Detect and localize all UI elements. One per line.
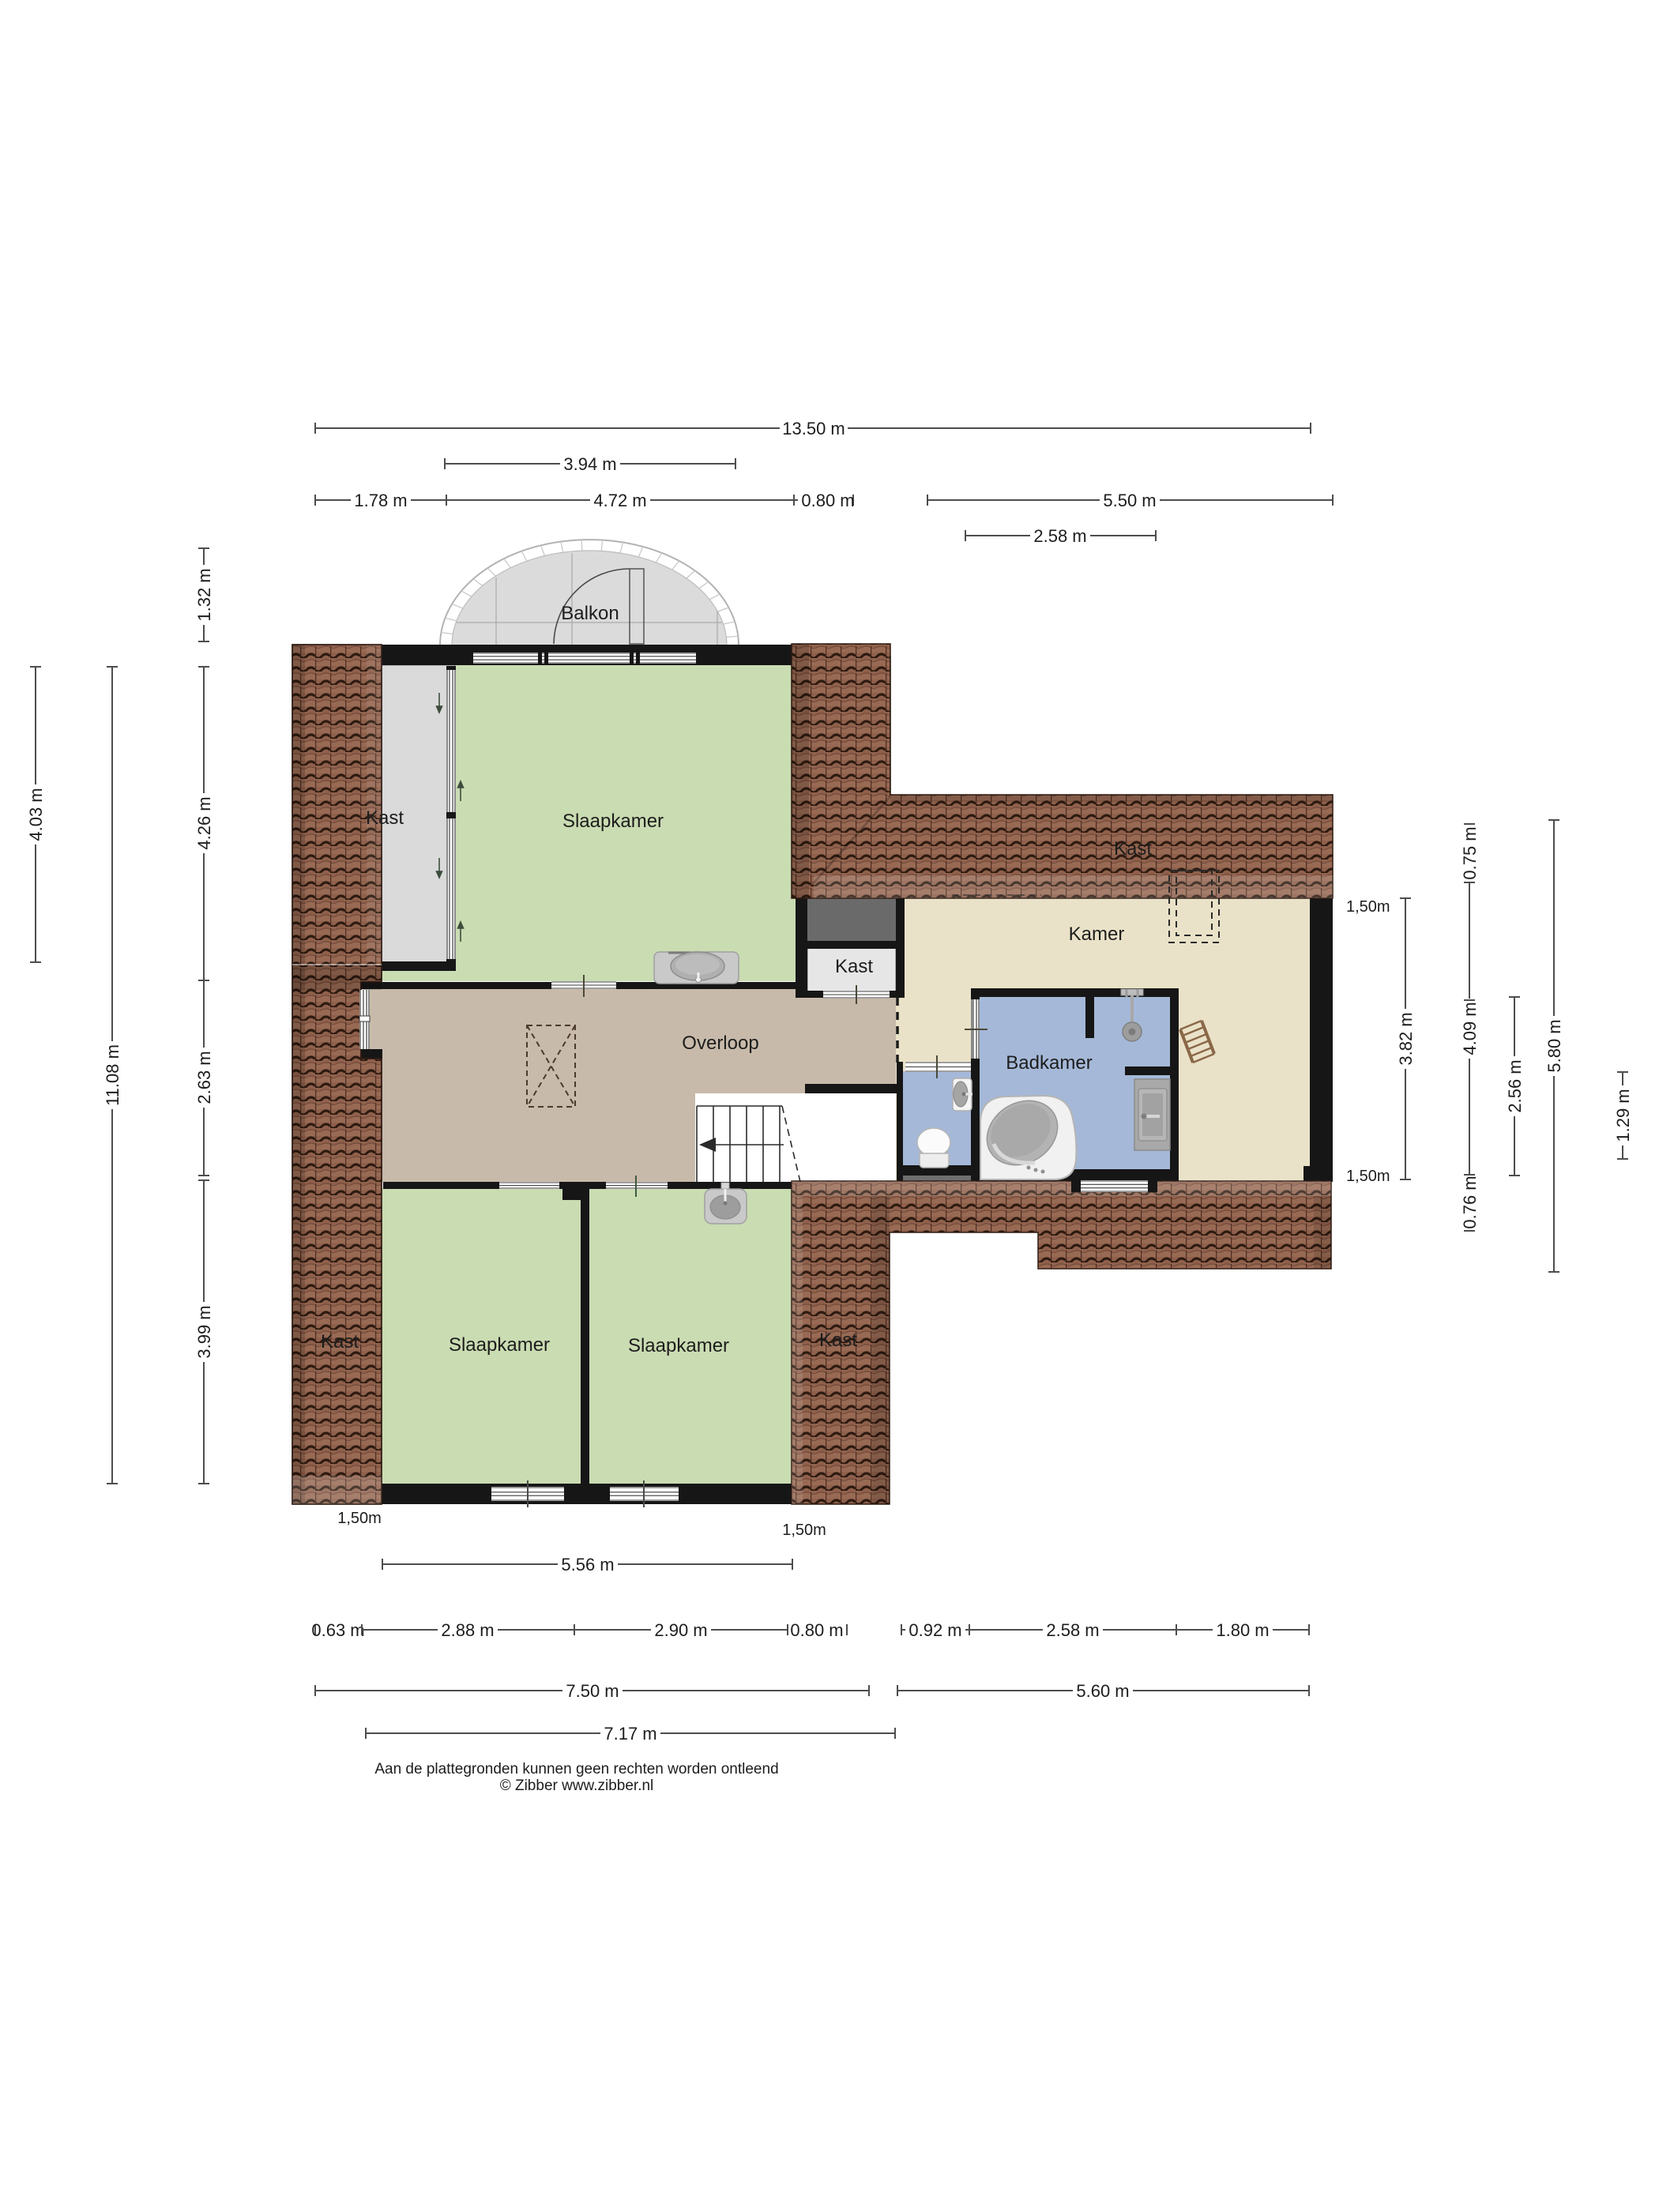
svg-text:11.08 m: 11.08 m bbox=[103, 1044, 122, 1106]
svg-text:1.80 m: 1.80 m bbox=[1216, 1620, 1269, 1640]
svg-text:1.78 m: 1.78 m bbox=[354, 491, 407, 510]
svg-text:0.75 m: 0.75 m bbox=[1460, 826, 1480, 879]
svg-text:Slaapkamer: Slaapkamer bbox=[628, 1335, 729, 1356]
svg-text:3.99 m: 3.99 m bbox=[194, 1305, 214, 1358]
svg-text:Aan de plattegronden kunnen ge: Aan de plattegronden kunnen geen rechten… bbox=[374, 1761, 778, 1777]
svg-text:5.50 m: 5.50 m bbox=[1103, 491, 1156, 510]
svg-text:0.80 m: 0.80 m bbox=[801, 491, 854, 510]
svg-text:5.60 m: 5.60 m bbox=[1076, 1681, 1129, 1701]
svg-text:2.90 m: 2.90 m bbox=[654, 1620, 707, 1640]
svg-text:0.76 m: 0.76 m bbox=[1460, 1176, 1480, 1228]
svg-text:5.80 m: 5.80 m bbox=[1544, 1019, 1564, 1072]
svg-text:Slaapkamer: Slaapkamer bbox=[562, 811, 664, 832]
svg-text:Kast: Kast bbox=[366, 807, 404, 829]
svg-text:1,50m: 1,50m bbox=[1346, 1168, 1390, 1185]
svg-text:4.09 m: 4.09 m bbox=[1460, 1002, 1480, 1055]
svg-text:Slaapkamer: Slaapkamer bbox=[449, 1334, 550, 1356]
svg-text:7.17 m: 7.17 m bbox=[604, 1724, 656, 1744]
svg-text:2.63 m: 2.63 m bbox=[194, 1051, 214, 1104]
svg-text:1.32 m: 1.32 m bbox=[194, 568, 214, 621]
svg-text:7.50 m: 7.50 m bbox=[566, 1681, 619, 1701]
svg-text:1.29 m: 1.29 m bbox=[1613, 1089, 1633, 1142]
svg-text:13.50 m: 13.50 m bbox=[782, 419, 845, 438]
svg-text:2.58 m: 2.58 m bbox=[1033, 526, 1086, 546]
svg-text:Overloop: Overloop bbox=[682, 1033, 758, 1054]
svg-text:3.82 m: 3.82 m bbox=[1396, 1012, 1416, 1065]
svg-text:Badkamer: Badkamer bbox=[1006, 1052, 1092, 1074]
svg-text:5.56 m: 5.56 m bbox=[561, 1555, 614, 1574]
svg-text:Kast: Kast bbox=[819, 1330, 857, 1351]
svg-text:Kast: Kast bbox=[835, 956, 873, 977]
svg-text:2.88 m: 2.88 m bbox=[441, 1620, 494, 1640]
svg-text:1,50m: 1,50m bbox=[782, 1522, 826, 1539]
svg-text:© Zibber www.zibber.nl: © Zibber www.zibber.nl bbox=[500, 1777, 654, 1794]
svg-text:3.94 m: 3.94 m bbox=[563, 454, 616, 474]
svg-text:0.63 m: 0.63 m bbox=[311, 1620, 364, 1640]
svg-text:4.72 m: 4.72 m bbox=[593, 491, 646, 510]
svg-text:Kamer: Kamer bbox=[1069, 924, 1125, 945]
svg-text:Balkon: Balkon bbox=[561, 603, 619, 624]
svg-text:0.92 m: 0.92 m bbox=[908, 1620, 961, 1640]
svg-text:2.56 m: 2.56 m bbox=[1505, 1059, 1525, 1112]
svg-text:Kast: Kast bbox=[321, 1331, 359, 1352]
svg-text:4.26 m: 4.26 m bbox=[194, 796, 214, 849]
svg-text:4.03 m: 4.03 m bbox=[26, 788, 46, 841]
svg-text:2.58 m: 2.58 m bbox=[1046, 1620, 1099, 1640]
svg-text:1,50m: 1,50m bbox=[337, 1510, 382, 1527]
svg-text:1,50m: 1,50m bbox=[1346, 898, 1390, 916]
svg-text:Kast: Kast bbox=[1114, 838, 1152, 860]
svg-text:0.80 m: 0.80 m bbox=[790, 1620, 843, 1640]
